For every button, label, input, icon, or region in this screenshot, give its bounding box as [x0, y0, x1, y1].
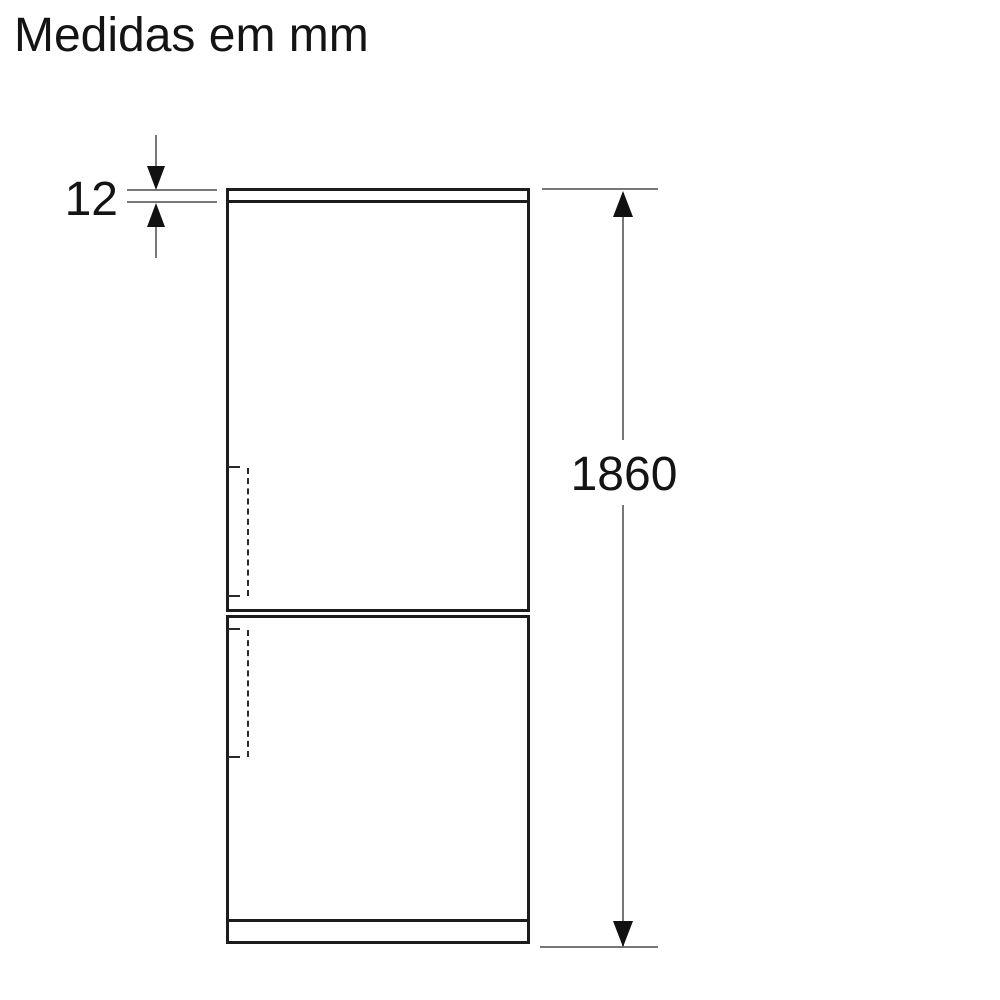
arrow-down-icon	[147, 166, 165, 190]
dimension-label-overall-height: 1860	[567, 451, 682, 499]
dimension-line-height-lower	[622, 505, 624, 946]
diagram-title: Medidas em mm	[14, 10, 369, 63]
extension-line-height-top	[542, 188, 658, 190]
leader-line-12-top	[155, 135, 157, 168]
fridge-compartment-divider	[226, 609, 530, 618]
upper-door-hinge-tick-top	[227, 466, 240, 468]
arrow-up-icon	[613, 191, 633, 217]
dimension-line-height-upper	[622, 193, 624, 440]
upper-door-hinge-dashed-line	[247, 468, 249, 596]
dimension-label-top-panel: 12	[62, 176, 118, 224]
fridge-top-panel-line	[229, 200, 527, 203]
extension-line-height-bottom	[540, 946, 658, 948]
arrow-down-icon	[613, 921, 633, 947]
extension-line-12-upper	[127, 189, 217, 191]
dimension-diagram: Medidas em mm 12 1860	[0, 0, 1000, 1000]
lower-door-hinge-dashed-line	[247, 630, 249, 757]
upper-door-hinge-tick-bottom	[227, 595, 240, 597]
lower-door-hinge-tick-top	[227, 628, 240, 630]
extension-line-12-lower	[127, 201, 217, 203]
lower-door-hinge-tick-bottom	[227, 756, 240, 758]
fridge-outline	[226, 188, 530, 944]
arrow-up-icon	[147, 203, 165, 227]
leader-line-12-bottom	[155, 227, 157, 258]
fridge-plinth-line	[229, 919, 527, 922]
